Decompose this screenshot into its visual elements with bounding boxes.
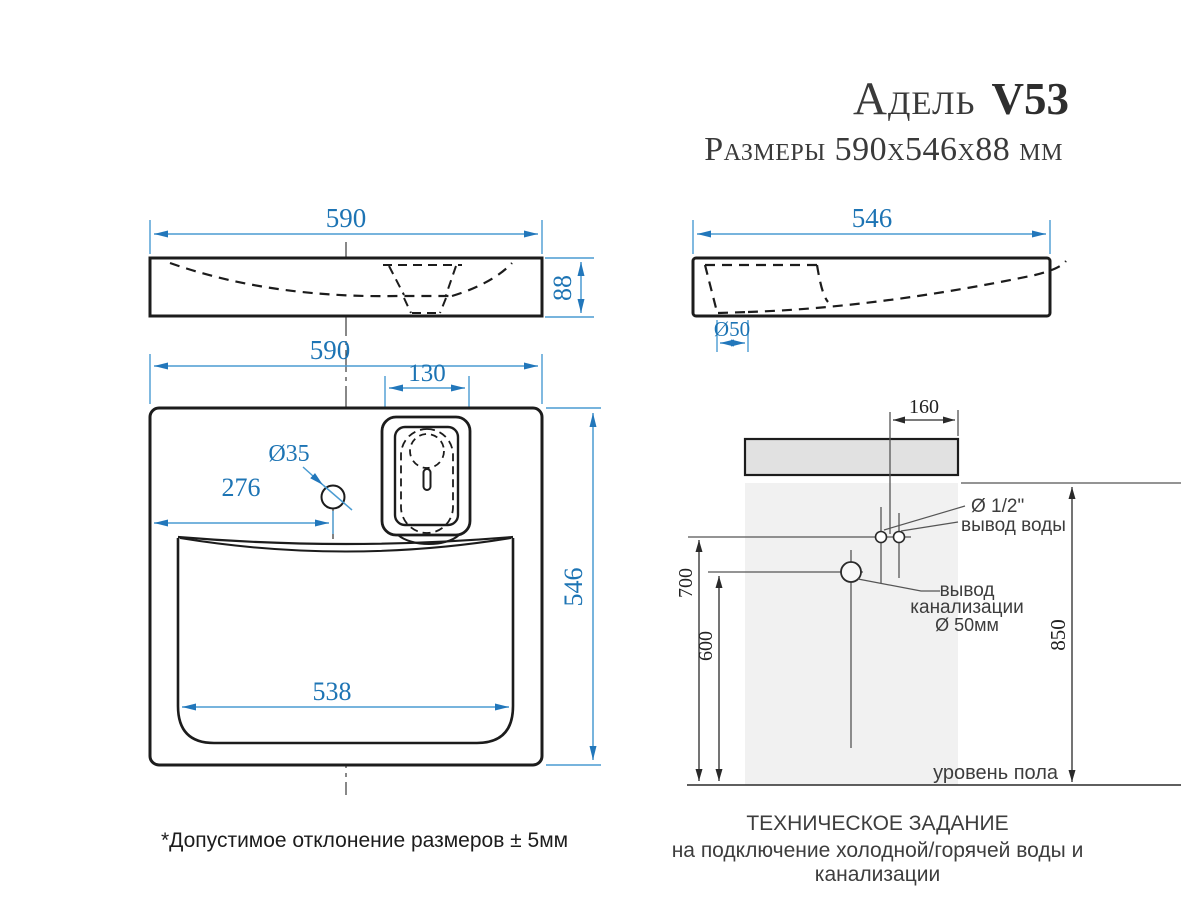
technical-spec-title: ТЕХНИЧЕСКОЕ ЗАДАНИЕ: [620, 812, 1135, 836]
water-outlet-right: [894, 532, 905, 543]
sink-plan-outline: [150, 408, 542, 765]
faucet-offset-dimension: 276: [222, 473, 261, 502]
side-depth-dimension: 546: [852, 203, 893, 233]
drain-diameter-dimension: Ø50: [714, 317, 750, 341]
water-height-dimension: 700: [675, 568, 697, 598]
basin-width-dimension: 538: [313, 677, 352, 706]
faucet-hole: [322, 486, 345, 509]
model-name: Адель: [853, 73, 976, 125]
plan-width-dimension: 590: [310, 335, 351, 365]
front-height-dimension: 88: [548, 275, 577, 301]
drain-height-dimension: 600: [695, 631, 717, 661]
side-view: 546 Ø50: [693, 203, 1066, 352]
front-view: 590 88: [150, 203, 594, 317]
overall-height-dimension: 850: [1046, 619, 1070, 651]
technical-spec-subtitle: на подключение холодной/горячей воды и к…: [620, 839, 1135, 887]
technical-drawing-page: АдельV53 Размеры 590х546х88 мм 590: [0, 0, 1200, 917]
tolerance-note: *Допустимое отклонение размеров ± 5мм: [161, 829, 568, 853]
sink-side-outline: [693, 258, 1050, 316]
overall-dimensions: Размеры 590х546х88 мм: [704, 131, 1063, 169]
page-title: АдельV53: [853, 72, 1069, 126]
sink-section: [745, 439, 958, 475]
tap-offset-dimension: 160: [909, 396, 939, 418]
water-outlet-left: [876, 532, 887, 543]
plan-depth-dimension: 546: [559, 568, 588, 607]
faucet-hole-dimension: Ø35: [268, 441, 309, 467]
recess-width-dimension: 130: [408, 360, 446, 387]
installation-diagram: 160 Ø 1/2" вывод воды вывод канализации …: [675, 396, 1181, 785]
water-outlet-label: вывод воды: [961, 515, 1066, 536]
front-width-dimension: 590: [326, 203, 367, 233]
technical-spec-block: ТЕХНИЧЕСКОЕ ЗАДАНИЕ на подключение холод…: [620, 812, 1135, 887]
floor-level-label: уровень пола: [933, 762, 1059, 784]
model-code: V53: [992, 74, 1070, 124]
plan-view: 590 130 Ø35 276: [150, 335, 601, 765]
sink-front-outline: [150, 258, 542, 316]
water-outlet-size-label: Ø 1/2": [971, 496, 1024, 517]
sewer-outlet-size-label: Ø 50мм: [935, 615, 999, 635]
